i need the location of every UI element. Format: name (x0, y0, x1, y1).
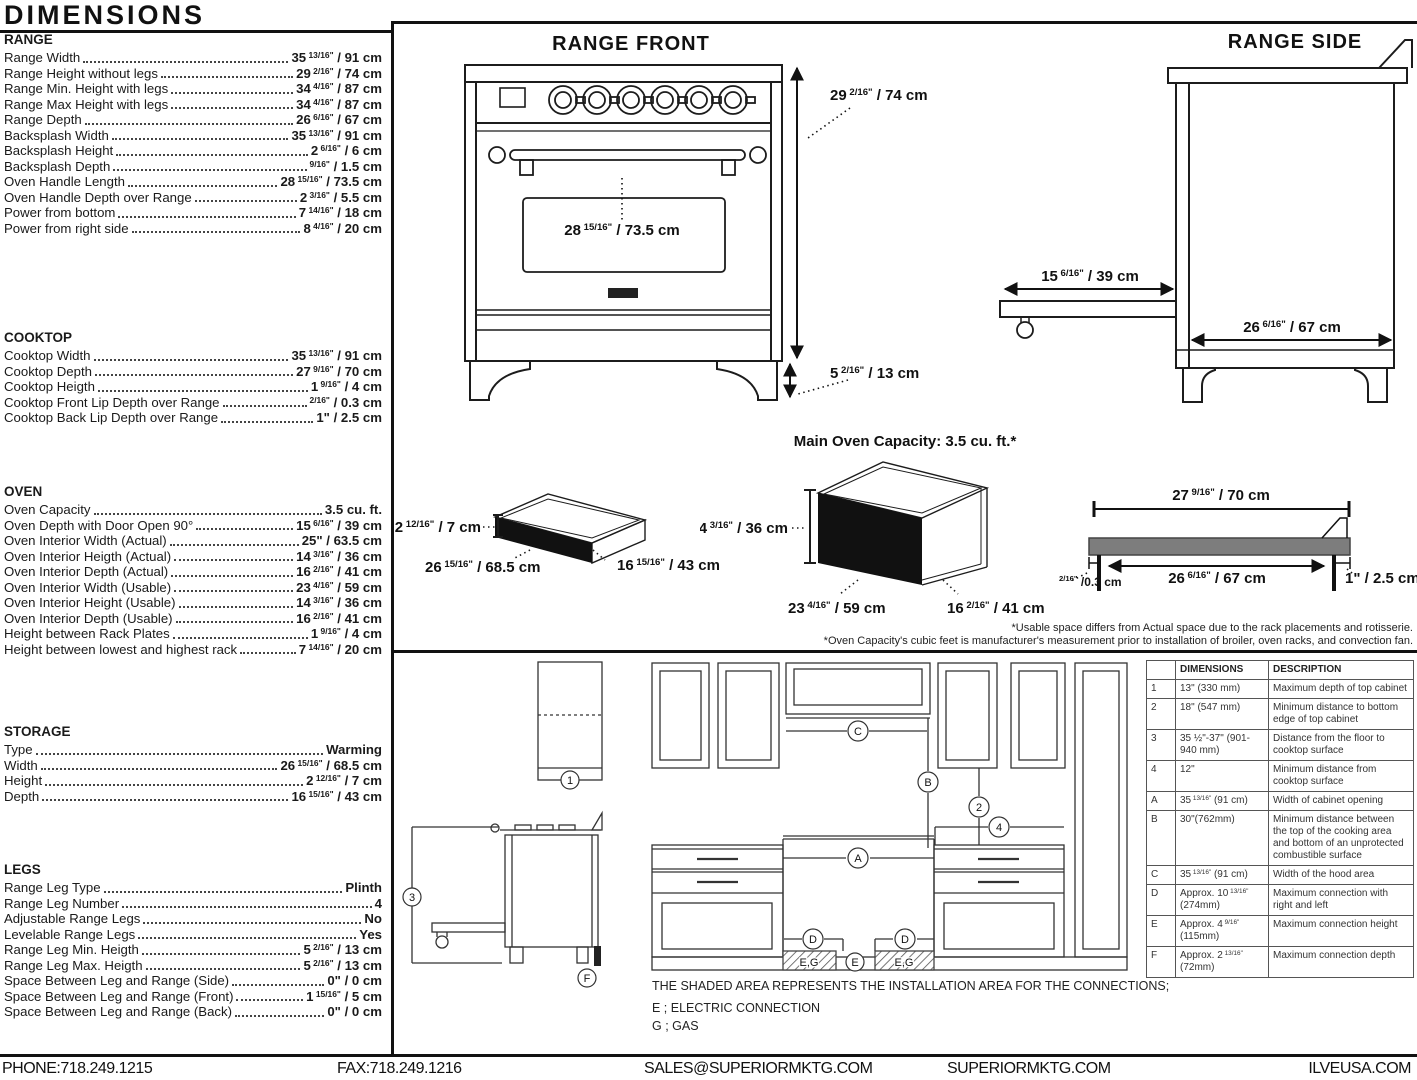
top-cabinet (538, 662, 602, 780)
dotted-leader (132, 231, 301, 233)
spec-value: 3.5 cu. ft. (325, 502, 382, 517)
spec-value: 34 4/16" / 87 cm (296, 97, 382, 112)
door-open-depth-dim: 15 6/16" / 39 cm (1041, 268, 1139, 285)
dotted-leader (94, 513, 322, 515)
dotted-leader (95, 374, 293, 376)
vertical-divider (391, 21, 394, 1055)
table-row: DApprox. 10 13/16" (274mm)Maximum connec… (1147, 885, 1414, 916)
spec-label: Range Min. Height with legs (4, 81, 168, 96)
spec-row: Oven Capacity3.5 cu. ft. (4, 502, 382, 518)
spec-label: Width (4, 758, 38, 773)
dotted-leader (116, 154, 308, 156)
backsplash (1379, 40, 1412, 68)
footnote-oven-capacity: *Oven Capacity's cubic feet is manufactu… (593, 635, 1413, 648)
dotted-leader (240, 652, 296, 654)
callout-connection-left: D (809, 934, 817, 946)
spec-value: Warming (326, 742, 382, 757)
callout-hood-width: C (854, 726, 862, 738)
spec-value: 23 4/16" / 59 cm (296, 580, 382, 595)
main-oven-diagram: Main Oven Capacity: 3.5 cu. ft.* 14 3/16… (700, 428, 1090, 640)
spec-row: Oven Handle Length28 15/16" / 73.5 cm (4, 174, 382, 190)
caster-wheel (1017, 322, 1033, 338)
cooktop-depth-dim: 27 9/16" / 70 cm (1172, 487, 1270, 504)
spec-row: Oven Interior Depth (Usable)16 2/16" / 4… (4, 611, 382, 627)
table-cell-description: Maximum depth of top cabinet (1269, 680, 1414, 699)
oven-capacity-title: Main Oven Capacity: 3.5 cu. ft.* (794, 433, 1017, 450)
spec-row: Range Leg Min. Heigth5 2/16" / 13 cm (4, 942, 382, 958)
spec-label: Cooktop Back Lip Depth over Range (4, 410, 218, 425)
spec-label: Oven Interior Depth (Usable) (4, 611, 173, 626)
footer-item: FAX:718.249.1216 (337, 1060, 462, 1078)
spec-value: 0" / 0 cm (327, 973, 382, 988)
spec-label: Oven Interior Width (Usable) (4, 580, 171, 595)
legend-gas: G ; GAS (652, 1019, 699, 1033)
spec-row: Oven Depth with Door Open 90°15 6/16" / … (4, 518, 382, 534)
footnote-usable-space: *Usable space differs from Actual space … (593, 622, 1413, 635)
dotted-leader (174, 559, 293, 561)
spec-row: Range Min. Height with legs34 4/16" / 87… (4, 81, 382, 97)
table-cell-id: E (1147, 916, 1176, 947)
callout-min-distance: 4 (996, 822, 1002, 834)
spec-value: 1 9/16" / 4 cm (311, 626, 382, 641)
spec-row: Range Height without legs29 2/16" / 74 c… (4, 66, 382, 82)
spec-value: 7 14/16" / 18 cm (299, 205, 382, 220)
range-height-dim: 29 2/16" / 74 cm (830, 87, 928, 104)
control-display (500, 88, 525, 107)
spec-label: Range Leg Type (4, 880, 101, 895)
spec-label: Oven Interior Width (Actual) (4, 533, 167, 548)
spec-row: Oven Interior Height (Usable)14 3/16" / … (4, 595, 382, 611)
spec-row: Range Max Height with legs34 4/16" / 87 … (4, 97, 382, 113)
cooktop-profile-diagram: 27 9/16" / 70 cm 26 6/16" / 67 cm 2/16" … (1057, 455, 1417, 640)
dotted-leader (146, 968, 301, 970)
table-row: EApprox. 4 9/16" (115mm)Maximum connecti… (1147, 916, 1414, 947)
dotted-leader (171, 107, 293, 109)
dotted-leader (42, 799, 288, 801)
callout-cabinet-clearance: 2 (976, 802, 982, 814)
spec-row: Levelable Range LegsYes (4, 927, 382, 943)
range-side-drawing (1000, 40, 1412, 402)
dotted-leader (196, 528, 293, 530)
table-row: FApprox. 2 13/16" (72mm)Maximum connecti… (1147, 947, 1414, 978)
dotted-leader (161, 76, 293, 78)
oven-interior-height-dim: 14 3/16" / 36 cm (700, 520, 788, 537)
dotted-leader (142, 953, 301, 955)
installation-elevation-diagram: C B 2 4 A D D E E,G E,G (650, 656, 1140, 978)
spec-label: Power from right side (4, 221, 129, 236)
spec-value: 28 15/16" / 73.5 cm (280, 174, 382, 189)
dotted-leader (112, 138, 289, 140)
spec-label: Space Between Leg and Range (Front) (4, 989, 233, 1004)
table-cell-dimension: Approx. 4 9/16" (115mm) (1176, 916, 1269, 947)
main-oven-drawing (792, 462, 987, 594)
spec-row: Oven Interior Depth (Actual)16 2/16" / 4… (4, 564, 382, 580)
spec-value: No (364, 911, 382, 926)
oven-handle (489, 147, 766, 175)
table-cell-id: F (1147, 947, 1176, 978)
handle-length-dim: 28 15/16" / 73.5 cm (564, 222, 679, 239)
spec-label: Oven Capacity (4, 502, 91, 517)
range-depth-inner-dim: 26 6/16" / 67 cm (1168, 570, 1266, 587)
table-cell-dimension: 13" (330 mm) (1176, 680, 1269, 699)
spec-label: Height (4, 773, 42, 788)
open-door-shelf (1000, 301, 1176, 317)
spec-label: Adjustable Range Legs (4, 911, 140, 926)
table-cell-description: Width of cabinet opening (1269, 792, 1414, 811)
dotted-leader (232, 984, 324, 986)
spec-row: Cooktop Back Lip Depth over Range1" / 2.… (4, 410, 382, 426)
spec-value: 35 13/16" / 91 cm (291, 348, 382, 363)
table-cell-description: Minimum distance from cooktop surface (1269, 761, 1414, 792)
side-foot-right (1355, 368, 1387, 402)
callout-opening-width: A (854, 853, 862, 865)
footer-item: SUPERIORMKTG.COM (947, 1060, 1111, 1078)
storage-height-dim: 2 12/16" / 7 cm (395, 519, 481, 536)
spec-row: Range Width35 13/16" / 91 cm (4, 50, 382, 66)
table-cell-id: 3 (1147, 730, 1176, 761)
reference-table: DIMENSIONSDESCRIPTION 113" (330 mm)Maxim… (1146, 660, 1414, 978)
table-row: 218" (547 mm)Minimum distance to bottom … (1147, 699, 1414, 730)
callout-combustible-clearance: B (924, 777, 931, 789)
table-header: DESCRIPTION (1269, 661, 1414, 680)
callout-connection-right: D (901, 934, 909, 946)
spec-row: Oven Interior Width (Actual)25" / 63.5 c… (4, 533, 382, 549)
dotted-leader (118, 216, 295, 218)
table-cell-id: D (1147, 885, 1176, 916)
dotted-leader (36, 753, 323, 755)
table-cell-id: C (1147, 866, 1176, 885)
spec-value: 1 9/16" / 4 cm (311, 379, 382, 394)
spec-section-title: LEGS (4, 862, 382, 877)
footnotes: *Usable space differs from Actual space … (593, 622, 1413, 648)
legend-electric: E ; ELECTRIC CONNECTION (652, 1001, 820, 1015)
spec-section-title: STORAGE (4, 724, 382, 739)
range-body-side (505, 835, 598, 947)
table-cell-dimension: 35 13/16" (91 cm) (1176, 792, 1269, 811)
elevation-callouts: C B 2 4 A D D E E,G E,G (800, 721, 1009, 971)
front-lip-dim: 1" / 2.5 cm (1345, 570, 1417, 587)
spec-row: Oven Handle Depth over Range2 3/16" / 5.… (4, 190, 382, 206)
dotted-leader (171, 575, 293, 577)
table-header (1147, 661, 1176, 680)
spec-row: Width26 15/16" / 68.5 cm (4, 758, 382, 774)
installation-side-diagram: 1 3 F (395, 656, 650, 1001)
spec-row: Adjustable Range LegsNo (4, 911, 382, 927)
spec-row: Cooktop Front Lip Depth over Range2/16" … (4, 395, 382, 411)
spec-label: Oven Interior Depth (Actual) (4, 564, 168, 579)
cooktop-slab-profile (1089, 538, 1350, 555)
storage-width-dim: 26 15/16" / 68.5 cm (425, 559, 540, 576)
spec-row: Power from right side8 4/16" / 20 cm (4, 221, 382, 237)
table-row: C35 13/16" (91 cm)Width of the hood area (1147, 866, 1414, 885)
table-row: B30"(762mm)Minimum distance between the … (1147, 811, 1414, 866)
table-cell-id: 4 (1147, 761, 1176, 792)
spec-section-storage: STORAGETypeWarmingWidth26 15/16" / 68.5 … (4, 724, 382, 804)
spec-value: 2 3/16" / 5.5 cm (300, 190, 382, 205)
table-cell-description: Minimum distance to bottom edge of top c… (1269, 699, 1414, 730)
leg-height-dim: 5 2/16" / 13 cm (830, 365, 919, 382)
spec-value: 0" / 0 cm (327, 1004, 382, 1019)
spec-value: 14 3/16" / 36 cm (296, 595, 382, 610)
top-rule (392, 21, 1417, 24)
range-depth-dim: 26 6/16" / 67 cm (1243, 319, 1341, 336)
spec-value: 26 6/16" / 67 cm (296, 112, 382, 127)
table-cell-dimension: 18" (547 mm) (1176, 699, 1269, 730)
caster-wheel-small (436, 936, 448, 948)
spec-sheet-page: DIMENSIONS RANGERange Width35 13/16" / 9… (0, 0, 1417, 1080)
spec-value: 27 9/16" / 70 cm (296, 364, 382, 379)
dotted-leader (104, 891, 343, 893)
spec-row: Backsplash Height2 6/16" / 6 cm (4, 143, 382, 159)
reference-table-wrap: DIMENSIONSDESCRIPTION 113" (330 mm)Maxim… (1146, 660, 1414, 978)
spec-label: Oven Interior Heigth (Actual) (4, 549, 171, 564)
backsplash-wedge (1322, 518, 1347, 538)
side-callouts: 1 3 F (403, 771, 596, 987)
spec-row: Oven Interior Width (Usable)23 4/16" / 5… (4, 580, 382, 596)
spec-row: Cooktop Depth27 9/16" / 70 cm (4, 364, 382, 380)
spec-row: Backsplash Depth9/16" / 1.5 cm (4, 159, 382, 175)
dotted-leader (143, 922, 361, 924)
footer-rule (0, 1054, 1417, 1057)
dotted-leader (176, 621, 294, 623)
range-front-title: RANGE FRONT (552, 33, 710, 55)
burner-knobs (549, 86, 755, 114)
hatch-label-right: E,G (895, 957, 914, 969)
oven-interior-width-dim: 23 4/16" / 59 cm (788, 600, 886, 617)
table-row: 335 ½"-37" (901-940 mm)Distance from the… (1147, 730, 1414, 761)
table-cell-dimension: 35 ½"-37" (901-940 mm) (1176, 730, 1269, 761)
spec-value: 35 13/16" / 91 cm (291, 50, 382, 65)
page-title: DIMENSIONS (4, 0, 205, 31)
spec-value: 1 15/16" / 5 cm (306, 989, 382, 1004)
spec-label: Oven Handle Length (4, 174, 125, 189)
spec-value: 2 6/16" / 6 cm (311, 143, 382, 158)
spec-value: 16 2/16" / 41 cm (296, 611, 382, 626)
spec-row: Range Leg Max. Heigth5 2/16" / 13 cm (4, 958, 382, 974)
spec-row: Range Depth26 6/16" / 67 cm (4, 112, 382, 128)
spec-value: 16 15/16" / 43 cm (291, 789, 382, 804)
spec-section-legs: LEGSRange Leg TypePlinthRange Leg Number… (4, 862, 382, 1020)
dotted-leader (173, 637, 308, 639)
oven-interior-depth-dim: 16 2/16" / 41 cm (947, 600, 1045, 617)
dotted-leader (83, 61, 288, 63)
spec-value: Yes (359, 927, 382, 942)
spec-value: 14 3/16" / 36 cm (296, 549, 382, 564)
hatch-label-left: E,G (800, 957, 819, 969)
spec-row: Space Between Leg and Range (Back)0" / 0… (4, 1004, 382, 1020)
table-cell-description: Maximum connection depth (1269, 947, 1414, 978)
installation-caption: THE SHADED AREA REPRESENTS THE INSTALLAT… (652, 979, 1169, 993)
spec-value: 15 6/16" / 39 cm (296, 518, 382, 533)
spec-value: 2/16" / 0.3 cm (310, 395, 383, 410)
table-cell-description: Maximum connection with right and left (1269, 885, 1414, 916)
dotted-leader (223, 405, 307, 407)
spec-label: Range Leg Min. Heigth (4, 942, 139, 957)
spec-row: TypeWarming (4, 742, 382, 758)
spec-label: Space Between Leg and Range (Side) (4, 973, 229, 988)
spec-label: Space Between Leg and Range (Back) (4, 1004, 232, 1019)
warming-drawer-drawing (483, 494, 645, 563)
table-cell-description: Width of the hood area (1269, 866, 1414, 885)
spec-value: 8 4/16" / 20 cm (303, 221, 382, 236)
table-header: DIMENSIONS (1176, 661, 1269, 680)
spec-value: 29 2/16" / 74 cm (296, 66, 382, 81)
spec-label: Type (4, 742, 33, 757)
dotted-leader (113, 169, 306, 171)
table-cell-id: 1 (1147, 680, 1176, 699)
side-foot-left (1183, 368, 1215, 402)
spec-section-oven: OVENOven Capacity3.5 cu. ft.Oven Depth w… (4, 484, 382, 657)
spec-row: Backsplash Width35 13/16" / 91 cm (4, 128, 382, 144)
table-row: 412"Minimum distance from cooktop surfac… (1147, 761, 1414, 792)
spec-label: Range Leg Number (4, 896, 119, 911)
spec-section-range: RANGERange Width35 13/16" / 91 cmRange H… (4, 32, 382, 236)
spec-label: Range Max Height with legs (4, 97, 168, 112)
back-lip-dim: 2/16" /0.3 cm (1059, 574, 1122, 589)
spec-label: Backsplash Height (4, 143, 113, 158)
dotted-leader (128, 185, 277, 187)
spec-value: 16 2/16" / 41 cm (296, 564, 382, 579)
open-door-side (432, 923, 505, 932)
dotted-leader (98, 390, 308, 392)
range-front-diagram: RANGE FRONT (400, 28, 955, 425)
footer-item: ILVEUSA.COM (1308, 1060, 1411, 1078)
spec-value: 5 2/16" / 13 cm (303, 942, 382, 957)
spec-value: Plinth (345, 880, 382, 895)
spec-label: Range Height without legs (4, 66, 158, 81)
spec-label: Range Leg Max. Heigth (4, 958, 143, 973)
table-cell-dimension: 12" (1176, 761, 1269, 792)
horizontal-divider (392, 650, 1417, 653)
spec-section-cooktop: COOKTOPCooktop Width35 13/16" / 91 cmCoo… (4, 330, 382, 426)
dotted-leader (235, 1015, 324, 1017)
spec-label: Cooktop Depth (4, 364, 92, 379)
spec-label: Cooktop Heigth (4, 379, 95, 394)
dotted-leader (94, 359, 289, 361)
table-cell-id: 2 (1147, 699, 1176, 730)
dotted-leader (45, 784, 303, 786)
spec-label: Levelable Range Legs (4, 927, 135, 942)
dotted-leader (174, 590, 293, 592)
oven-interior-wall (818, 493, 922, 585)
dotted-leader (221, 421, 313, 423)
dotted-leader (41, 768, 278, 770)
table-cell-dimension: Approx. 2 13/16" (72mm) (1176, 947, 1269, 978)
spec-value: 1" / 2.5 cm (316, 410, 382, 425)
dotted-leader (179, 606, 294, 608)
dotted-leader (195, 200, 297, 202)
hood-cabinet (786, 663, 930, 714)
table-cell-id: A (1147, 792, 1176, 811)
range-foot-right (717, 361, 777, 400)
spec-value: 2 12/16" / 7 cm (306, 773, 382, 788)
dotted-leader (170, 544, 299, 546)
spec-row: Space Between Leg and Range (Side)0" / 0… (4, 973, 382, 989)
spec-value: 26 15/16" / 68.5 cm (280, 758, 382, 773)
table-cell-description: Minimum distance between the top of the … (1269, 811, 1414, 866)
spec-row: Depth16 15/16" / 43 cm (4, 789, 382, 805)
spec-label: Oven Depth with Door Open 90° (4, 518, 193, 533)
spec-section-title: RANGE (4, 32, 382, 47)
table-cell-dimension: 35 13/16" (91 cm) (1176, 866, 1269, 885)
spec-row: Oven Interior Heigth (Actual)14 3/16" / … (4, 549, 382, 565)
spec-label: Oven Handle Depth over Range (4, 190, 192, 205)
spec-label: Power from bottom (4, 205, 115, 220)
spec-label: Depth (4, 789, 39, 804)
spec-value: 25" / 63.5 cm (302, 533, 382, 548)
spec-value: 7 14/16" / 20 cm (299, 642, 382, 657)
table-row: 113" (330 mm)Maximum depth of top cabine… (1147, 680, 1414, 699)
table-cell-dimension: 30"(762mm) (1176, 811, 1269, 866)
spec-label: Backsplash Width (4, 128, 109, 143)
callout-floor-height: 3 (409, 892, 415, 904)
dotted-leader (85, 123, 293, 125)
spec-row: Power from bottom7 14/16" / 18 cm (4, 205, 382, 221)
spec-label: Range Depth (4, 112, 82, 127)
spec-label: Backsplash Depth (4, 159, 110, 174)
cooktop-slab (1168, 68, 1407, 83)
spec-label: Range Width (4, 50, 80, 65)
range-side-title: RANGE SIDE (1228, 31, 1362, 53)
spec-section-title: COOKTOP (4, 330, 382, 345)
spec-label: Cooktop Front Lip Depth over Range (4, 395, 220, 410)
dotted-leader (122, 906, 372, 908)
spec-label: Height between lowest and highest rack (4, 642, 237, 657)
spec-row: Height2 12/16" / 7 cm (4, 773, 382, 789)
spec-row: Cooktop Heigth1 9/16" / 4 cm (4, 379, 382, 395)
spec-row: Height between lowest and highest rack7 … (4, 642, 382, 658)
footer-item: PHONE:718.249.1215 (2, 1060, 152, 1078)
range-side-diagram: RANGE SIDE 15 6/16" / 39 cm 26 6/16" / 6… (955, 28, 1417, 425)
spec-value: 4 (375, 896, 382, 911)
spec-value: 9/16" / 1.5 cm (310, 159, 383, 174)
spec-row: Height between Rack Plates1 9/16" / 4 cm (4, 626, 382, 642)
spec-value: 5 2/16" / 13 cm (303, 958, 382, 973)
brand-badge (608, 288, 638, 298)
spec-section-title: OVEN (4, 484, 382, 499)
installation-side-drawing (412, 662, 602, 966)
table-row: A35 13/16" (91 cm)Width of cabinet openi… (1147, 792, 1414, 811)
table-cell-dimension: Approx. 10 13/16" (274mm) (1176, 885, 1269, 916)
drawer-front-face (495, 517, 592, 563)
spec-value: 34 4/16" / 87 cm (296, 81, 382, 96)
spec-label: Height between Rack Plates (4, 626, 170, 641)
table-cell-description: Maximum connection height (1269, 916, 1414, 947)
spec-label: Oven Interior Height (Usable) (4, 595, 176, 610)
spec-row: Range Leg TypePlinth (4, 880, 382, 896)
footer-item: SALES@SUPERIORMKTG.COM (644, 1060, 872, 1078)
dotted-leader (236, 999, 303, 1001)
range-foot-left (470, 361, 530, 400)
spec-row: Space Between Leg and Range (Front)1 15/… (4, 989, 382, 1005)
dotted-leader (171, 92, 293, 94)
table-cell-description: Distance from the floor to cooktop surfa… (1269, 730, 1414, 761)
table-cell-id: B (1147, 811, 1176, 866)
connection-strip (594, 946, 601, 966)
spec-value: 35 13/16" / 91 cm (291, 128, 382, 143)
callout-connection-height: E (851, 957, 858, 969)
callout-connection-depth: F (584, 973, 591, 985)
elevation-drawing (652, 663, 1127, 970)
spec-row: Cooktop Width35 13/16" / 91 cm (4, 348, 382, 364)
dotted-leader (138, 937, 356, 939)
spec-label: Cooktop Width (4, 348, 91, 363)
callout-top-cabinet: 1 (567, 775, 573, 787)
spec-row: Range Leg Number4 (4, 896, 382, 912)
